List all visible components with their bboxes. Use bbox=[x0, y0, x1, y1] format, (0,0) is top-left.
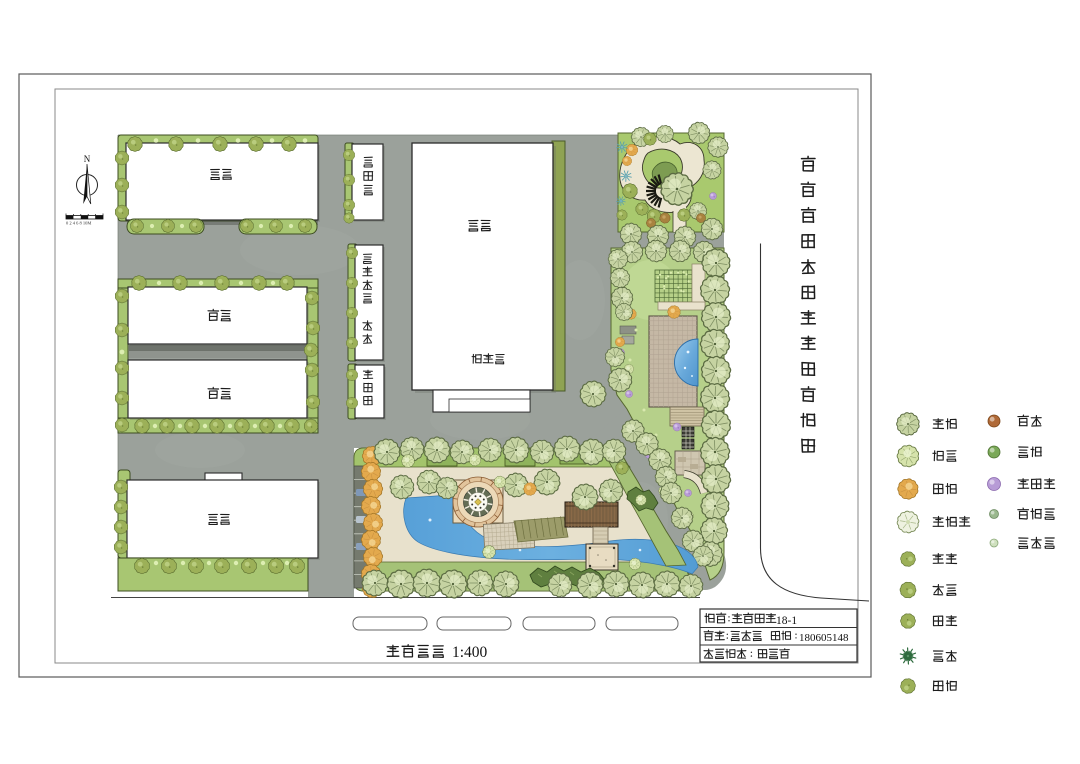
svg-text:1:400: 1:400 bbox=[452, 644, 488, 661]
svg-text:0 2 4 6 8 10M: 0 2 4 6 8 10M bbox=[66, 221, 91, 226]
svg-text:N: N bbox=[84, 154, 91, 164]
svg-text:180605148: 180605148 bbox=[799, 632, 849, 644]
svg-text:18-1: 18-1 bbox=[776, 615, 797, 627]
